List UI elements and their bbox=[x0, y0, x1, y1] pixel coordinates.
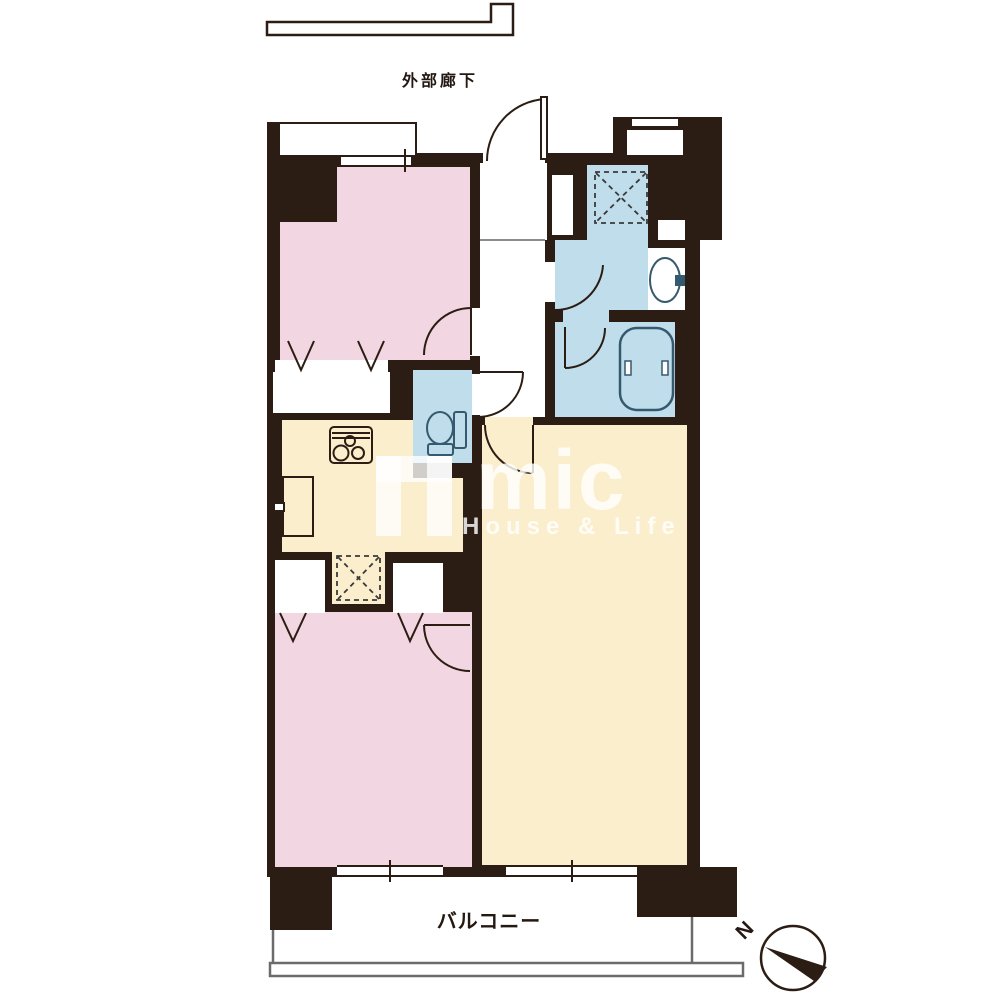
doorway-entrance bbox=[483, 153, 545, 165]
floor-plan: mic House & Life 外部廊下 室外機置場 MB 玄関 下駄箱 洗 … bbox=[0, 0, 1000, 1000]
wall-bedroom1-notch bbox=[267, 155, 337, 222]
doorway-washroom bbox=[545, 262, 555, 302]
window-living-dining bbox=[506, 865, 637, 877]
exterior-corridor-outline bbox=[267, 4, 513, 35]
room-living-dining bbox=[482, 425, 687, 865]
room-toilet bbox=[413, 370, 472, 463]
entrance-door-icon bbox=[487, 97, 547, 161]
wall-below-toilet bbox=[413, 463, 478, 478]
room-washroom bbox=[587, 165, 648, 310]
fridge-niche bbox=[332, 552, 385, 604]
storage-area bbox=[275, 560, 325, 602]
compass-north-label: N bbox=[728, 913, 763, 948]
doorway-bathroom bbox=[563, 310, 609, 322]
meter-box-vent bbox=[630, 117, 680, 128]
window-bedroom2 bbox=[337, 865, 443, 877]
room-bedroom2 bbox=[275, 612, 472, 867]
doorway-ld bbox=[485, 417, 533, 425]
shoe-box-area bbox=[552, 175, 573, 235]
label-balcony: バルコニー bbox=[389, 910, 589, 934]
doorway-bedroom1 bbox=[470, 308, 480, 356]
storage-opening bbox=[275, 602, 325, 613]
closet2-area bbox=[393, 563, 443, 602]
closet1-area bbox=[273, 372, 390, 413]
closet1-opening bbox=[275, 360, 388, 372]
entrance-step-line bbox=[480, 239, 545, 241]
sink-area bbox=[648, 248, 685, 310]
label-exterior-corridor: 外部廊下 bbox=[385, 72, 495, 91]
room-entrance bbox=[480, 163, 547, 240]
outdoor-unit-box bbox=[278, 122, 417, 157]
meter-box bbox=[625, 128, 685, 157]
wall-balcony-right-block bbox=[637, 867, 737, 917]
doorway-toilet bbox=[472, 374, 480, 415]
wall-balcony-left-block bbox=[270, 870, 332, 930]
room-hall bbox=[480, 240, 545, 417]
room-bathroom bbox=[555, 322, 675, 417]
wall-notch-right bbox=[658, 220, 685, 240]
compass-icon bbox=[761, 926, 827, 990]
room-washroom-entry bbox=[555, 240, 587, 310]
closet2-opening bbox=[393, 602, 443, 613]
